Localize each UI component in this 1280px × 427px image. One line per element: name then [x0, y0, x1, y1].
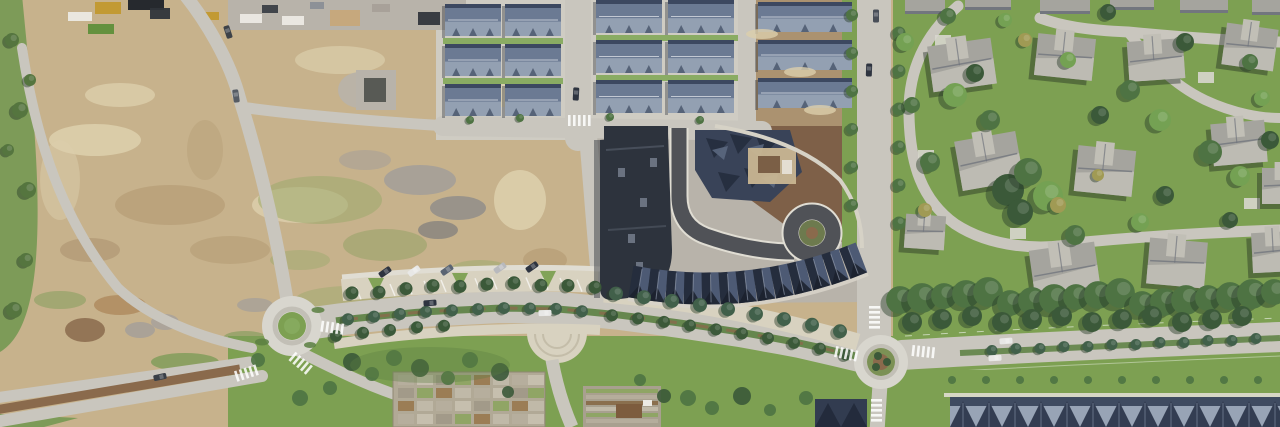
tree-highlight	[715, 325, 720, 330]
tree-highlight	[819, 344, 824, 349]
roof-edge	[1110, 7, 1154, 10]
roof-north-edge	[758, 78, 852, 82]
car	[873, 10, 879, 23]
tree-highlight	[991, 346, 996, 351]
tree-highlight	[529, 304, 534, 309]
roof-shadow	[665, 2, 668, 35]
garden-row	[586, 395, 658, 399]
tree-highlight	[555, 304, 560, 309]
roof-shadow	[665, 42, 668, 75]
tree-highlight	[399, 310, 404, 315]
tree-highlight	[615, 288, 621, 294]
garden-plot	[512, 401, 528, 411]
roof-edge	[1040, 11, 1090, 14]
tree-highlight	[1117, 282, 1130, 295]
tree-highlight	[851, 125, 856, 130]
garden-plot	[398, 401, 414, 411]
zebra-stripe	[869, 306, 880, 309]
tree-highlight	[1111, 340, 1116, 345]
garden-plot	[398, 388, 414, 398]
park-shrub	[733, 387, 751, 405]
tree-highlight	[903, 35, 911, 43]
roof-north-edge	[505, 44, 561, 48]
car	[999, 338, 1012, 345]
tree-highlight	[594, 282, 600, 288]
equipment	[372, 4, 390, 12]
tree-highlight	[1128, 83, 1137, 92]
tree-highlight	[851, 163, 856, 168]
zebra-stripe	[869, 311, 880, 314]
tree-highlight	[767, 334, 772, 339]
tree-highlight	[425, 307, 430, 312]
garden-plot	[493, 401, 509, 411]
equipment	[95, 2, 121, 14]
back-shrub	[1220, 376, 1228, 384]
tree-highlight	[1017, 202, 1029, 214]
tree-highlight	[513, 278, 519, 284]
garden-plot	[528, 388, 544, 398]
garden-plot	[512, 388, 528, 398]
tree-highlight	[519, 115, 523, 119]
back-shrub	[1118, 376, 1126, 384]
tree-highlight	[416, 323, 421, 328]
zebra-stripe	[568, 115, 571, 126]
tree-highlight	[451, 306, 456, 311]
tree-highlight	[1231, 336, 1236, 341]
roof-north-edge	[668, 0, 734, 4]
tree-highlight	[699, 117, 703, 121]
courtyard-circle-center	[806, 227, 818, 239]
equipment	[240, 14, 262, 23]
tree-highlight	[953, 86, 964, 97]
equipment	[282, 16, 304, 25]
tree-highlight	[1045, 185, 1059, 199]
tree-highlight	[609, 114, 613, 118]
zebra-stripe	[588, 115, 591, 126]
tree-highlight	[898, 142, 904, 148]
tree-highlight	[1240, 309, 1249, 318]
building-shadow	[594, 140, 600, 298]
splitter-island	[304, 342, 316, 348]
tree-highlight	[347, 315, 352, 320]
equipment	[262, 5, 278, 13]
tree-highlight	[1066, 54, 1073, 61]
tree-highlight	[924, 205, 930, 211]
tree-highlight	[1120, 312, 1129, 321]
garden-plot	[528, 414, 544, 424]
dirt-patch	[65, 318, 105, 342]
roof-shadow	[442, 86, 445, 118]
tree-highlight	[1207, 336, 1212, 341]
garden-plot	[417, 388, 433, 398]
roof-ridge	[711, 274, 712, 302]
park-shrub	[251, 353, 265, 367]
tree-highlight	[783, 314, 789, 320]
roof-north-edge	[596, 80, 662, 84]
roof-north-edge	[445, 84, 501, 88]
roof-north-edge	[668, 40, 734, 44]
roof-shadow	[502, 46, 505, 78]
tree-highlight	[25, 255, 31, 261]
park-shrub	[657, 389, 671, 403]
zebra-stripe	[871, 409, 882, 412]
garden-plot	[398, 414, 414, 424]
rooftop-unit	[650, 158, 657, 167]
tree-highlight	[1228, 214, 1235, 221]
tree-highlight	[503, 304, 508, 309]
zebra-stripe	[869, 326, 880, 329]
row-north-slope	[950, 397, 1280, 406]
tree-highlight	[910, 315, 919, 324]
tree-highlight	[839, 326, 845, 332]
zebra-stripe	[871, 419, 882, 422]
equipment	[418, 12, 440, 25]
tree-highlight	[851, 87, 856, 92]
tree-highlight	[389, 326, 394, 331]
park-shrub	[705, 401, 719, 415]
dirt-patch	[494, 170, 546, 230]
row-back-green	[940, 370, 1280, 396]
west-roundabout-island-center	[284, 318, 300, 334]
roof-north-edge	[445, 44, 501, 48]
tree-highlight	[699, 300, 705, 306]
back-shrub	[1254, 376, 1262, 384]
tree-highlight	[1039, 344, 1044, 349]
tree-highlight	[1158, 112, 1168, 122]
tree-highlight	[29, 76, 34, 81]
back-shrub	[1050, 376, 1058, 384]
frame-wall	[782, 160, 792, 174]
tree-highlight	[1090, 315, 1099, 324]
satellite-image	[0, 0, 1280, 427]
equipment	[310, 2, 324, 9]
yard-dirt	[784, 67, 816, 77]
tree-highlight	[1015, 344, 1020, 349]
row-townhouse-unit	[718, 271, 738, 304]
tree-highlight	[910, 99, 917, 106]
zebra-stripe	[573, 115, 576, 126]
tree-highlight	[985, 281, 998, 294]
tree-highlight	[940, 312, 949, 321]
front-lawn	[443, 78, 563, 84]
tree-highlight	[671, 296, 677, 302]
tree-highlight	[1063, 342, 1068, 347]
tree-highlight	[663, 317, 668, 322]
zebra-stripe	[869, 321, 880, 324]
flat-roof-north-wing	[604, 126, 668, 140]
zebra-stripe	[871, 414, 882, 417]
tree-highlight	[540, 280, 546, 286]
rooftop-unit	[628, 234, 635, 243]
tree-highlight	[1098, 108, 1106, 116]
tree-highlight	[459, 282, 465, 288]
tree-highlight	[1056, 199, 1063, 206]
back-shrub	[948, 376, 956, 384]
tree-highlight	[1268, 133, 1276, 141]
tree-highlight	[741, 329, 746, 334]
island-tree	[874, 352, 882, 360]
utility-structure	[364, 78, 386, 102]
tree-highlight	[898, 66, 904, 72]
tree-highlight	[26, 184, 33, 191]
garden-shed	[616, 404, 642, 418]
tree-highlight	[811, 320, 817, 326]
garden-plot	[528, 401, 544, 411]
tree-highlight	[793, 338, 798, 343]
tree-highlight	[1248, 56, 1255, 63]
tree-highlight	[1183, 338, 1188, 343]
rear-lane	[944, 393, 1280, 397]
dirt-patch	[85, 83, 155, 107]
roof-north-edge	[758, 40, 852, 44]
tree-highlight	[898, 218, 904, 224]
tree-highlight	[1024, 35, 1030, 41]
tree-highlight	[18, 104, 25, 111]
tree-highlight	[1030, 312, 1039, 321]
dirt-patch	[295, 46, 385, 74]
tree-highlight	[469, 117, 473, 121]
dirt-patch	[339, 150, 391, 170]
garden-plot	[455, 388, 471, 398]
tree-highlight	[362, 328, 367, 333]
garden-plot	[512, 375, 528, 385]
splitter-island	[255, 339, 269, 346]
roof-north-edge	[596, 40, 662, 44]
equipment	[68, 12, 92, 21]
tree-highlight	[1163, 188, 1171, 196]
tree-highlight	[898, 180, 904, 186]
aerial-photo-stage	[0, 0, 1280, 427]
tree-highlight	[988, 113, 997, 122]
car-glass	[874, 13, 878, 17]
tree-highlight	[7, 146, 12, 151]
tree-highlight	[581, 307, 586, 312]
park-shrub	[323, 381, 337, 395]
rooftop-unit	[618, 168, 625, 177]
roof-north-edge	[505, 84, 561, 88]
back-shrub	[1084, 376, 1092, 384]
driveway-court	[1198, 72, 1214, 83]
garden-plot	[493, 414, 509, 424]
roof-shadow	[502, 86, 505, 118]
roof-shadow	[593, 42, 596, 75]
tree-highlight	[1238, 169, 1247, 178]
car-glass	[574, 90, 579, 94]
car	[866, 63, 872, 76]
tree-highlight	[1073, 228, 1082, 237]
back-shrub	[1186, 376, 1194, 384]
garden-plot	[436, 414, 452, 424]
park-shrub	[292, 390, 308, 406]
park-shrub	[764, 404, 776, 416]
equipment	[150, 8, 170, 19]
frame-courtyard	[758, 156, 780, 173]
garden-plot	[528, 375, 544, 385]
garden-plot	[512, 414, 528, 424]
roof-north-edge	[758, 2, 852, 6]
roof-shadow	[755, 42, 758, 72]
car	[573, 87, 580, 100]
tree-highlight	[1180, 315, 1189, 324]
dirt-patch	[34, 291, 86, 309]
roof-shadow	[442, 6, 445, 38]
driveway-court	[1010, 228, 1026, 239]
equipment	[88, 24, 114, 34]
garden-plot	[436, 401, 452, 411]
tree-highlight	[689, 321, 694, 326]
car-glass	[1005, 339, 1009, 344]
tree-highlight	[1260, 92, 1267, 99]
tree-highlight	[898, 28, 904, 34]
roof-shadow	[755, 80, 758, 110]
tree-highlight	[973, 66, 981, 74]
tree-highlight	[1183, 35, 1191, 43]
dirt-patch	[384, 165, 456, 195]
tree-highlight	[1135, 340, 1140, 345]
back-shrub	[982, 376, 990, 384]
roof-edge	[1252, 12, 1280, 15]
zebra-stripe	[869, 316, 880, 319]
tree-highlight	[643, 292, 649, 298]
car-glass	[994, 356, 998, 361]
island-tree	[883, 358, 891, 366]
tree-highlight	[1004, 15, 1010, 21]
garden-plot	[455, 414, 471, 424]
tree-highlight	[1159, 338, 1164, 343]
dirt-patch	[430, 196, 486, 220]
garden-row	[586, 419, 658, 423]
zebra-stripe	[578, 115, 581, 126]
tree-highlight	[851, 201, 856, 206]
garden-row	[586, 389, 658, 393]
roof-north-edge	[445, 4, 501, 8]
tree-highlight	[1106, 6, 1113, 13]
zebra-stripe	[583, 115, 586, 126]
townhouse-district	[442, 0, 852, 118]
roof-shadow	[665, 82, 668, 115]
tree-highlight	[477, 305, 482, 310]
car-glass	[429, 301, 433, 306]
garden-structure	[643, 400, 652, 406]
tree-highlight	[1138, 215, 1146, 223]
park-shrub	[799, 391, 813, 405]
roof-wing	[1275, 162, 1280, 180]
tree-highlight	[443, 321, 448, 326]
roof-shadow	[442, 46, 445, 78]
tree-highlight	[378, 287, 384, 293]
tree-highlight	[11, 35, 17, 41]
garden-plot	[455, 401, 471, 411]
dirt-patch	[187, 120, 223, 180]
park-shrub	[502, 386, 514, 398]
tree-highlight	[755, 309, 761, 315]
tree-highlight	[727, 304, 733, 310]
back-shrub	[1016, 376, 1024, 384]
shrub-bed	[350, 347, 510, 383]
roof-shadow	[593, 82, 596, 115]
tree-highlight	[851, 49, 856, 54]
garden-plot	[417, 414, 433, 424]
tree-highlight	[946, 10, 953, 17]
dirt-patch	[418, 221, 458, 239]
tree-highlight	[12, 304, 19, 311]
back-shrub	[1152, 376, 1160, 384]
yard-dirt	[804, 105, 836, 115]
roof-north-edge	[596, 0, 662, 4]
tree-highlight	[351, 288, 357, 294]
roof-edge	[1180, 10, 1228, 13]
tree-highlight	[1255, 334, 1260, 339]
tree-highlight	[1208, 143, 1219, 154]
tree-highlight	[1087, 342, 1092, 347]
car-glass	[233, 92, 238, 97]
dirt-patch	[343, 229, 427, 261]
tree-highlight	[432, 281, 438, 287]
equipment	[330, 10, 360, 26]
dirt-patch	[125, 322, 155, 338]
roof-north-edge	[505, 4, 561, 8]
garden-plot	[474, 414, 490, 424]
tree-highlight	[1150, 309, 1159, 318]
dirt-patch	[115, 185, 225, 225]
tree-highlight	[851, 11, 856, 16]
tree-highlight	[637, 314, 642, 319]
tree-highlight	[1000, 315, 1009, 324]
garden-plot	[436, 388, 452, 398]
splitter-island	[312, 307, 325, 313]
tree-highlight	[1097, 171, 1102, 176]
zebra-stripe	[871, 399, 882, 402]
car	[988, 355, 1001, 362]
island-tree	[872, 363, 880, 371]
dirt-patch	[190, 236, 270, 264]
tree-highlight	[567, 281, 573, 287]
tree-highlight	[611, 311, 616, 316]
tree-highlight	[970, 309, 979, 318]
park-shrub	[680, 390, 696, 406]
car-glass	[867, 66, 872, 70]
tree-highlight	[1060, 309, 1069, 318]
tree-highlight	[1025, 162, 1038, 175]
tree-highlight	[1210, 312, 1219, 321]
zebra-stripe	[871, 404, 882, 407]
roof-shadow	[593, 2, 596, 35]
car-glass	[544, 311, 548, 316]
car	[423, 300, 436, 307]
tree-highlight	[405, 284, 411, 290]
tree-highlight	[373, 312, 378, 317]
garden-plot	[474, 401, 490, 411]
rooftop-unit	[640, 198, 647, 207]
roof-north-edge	[668, 80, 734, 84]
tree-highlight	[486, 279, 492, 285]
garden-plot	[474, 388, 490, 398]
roof-shadow	[502, 6, 505, 38]
yard-dirt	[746, 29, 778, 39]
front-lawn	[443, 38, 563, 44]
tree-highlight	[928, 155, 937, 164]
park-shrub	[634, 374, 646, 386]
roof-edge	[965, 7, 1011, 10]
garden-plot	[417, 401, 433, 411]
car	[538, 310, 551, 316]
